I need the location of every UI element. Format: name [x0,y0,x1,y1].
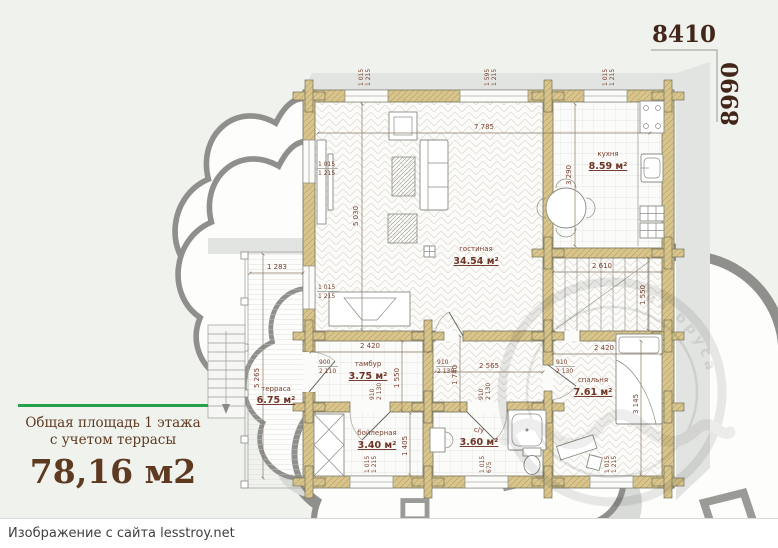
room-name-bedroom: спальня [578,376,608,384]
room-area-terrace: 6.75 м² [257,395,296,406]
room-name-kitchen: кухня [597,150,618,158]
room-area-bath: 3.60 м² [460,437,499,448]
room-name-bath: с/у [474,426,484,434]
exterior-stairs [208,325,245,418]
room-area-living: 34.54 м² [453,256,498,267]
door-label: 900 [319,359,331,366]
dim-terrace-width: 1 283 [267,263,287,271]
window-label: 1 015 [604,456,611,473]
window [303,140,315,183]
sink [641,154,663,182]
dim-vestibule-height: 1 550 [393,368,401,388]
tv-table [389,112,417,140]
window-label: 1 015 [479,456,486,473]
dim-terrace-height: 5 265 [253,368,261,388]
room-name-terrace: терраса [261,385,291,393]
overall-width-label: 8410 [652,21,716,48]
window-label: 1 595 [484,69,491,86]
room-area-vestibule: 3.75 м² [349,371,388,382]
column-marker [424,246,435,257]
door-label: 2 130 [556,368,573,375]
dim-kitchen-height: 3 290 [565,165,573,185]
floor-plan-page: 7 785 5 030 3 290 2 610 1 550 2 420 3 14… [0,0,778,548]
sideboard [317,140,326,224]
door-label: 2 130 [485,383,492,400]
total-area-value: 78,16 м2 [14,452,212,491]
stove [640,101,664,133]
door-label: 910 [369,388,376,400]
window-label: 1 015 [602,69,609,86]
fireplace [329,292,410,326]
sofa [420,140,448,210]
door-label: 910 [556,359,568,366]
window [345,90,388,102]
dim-boiler-height: 1 405 [401,436,409,456]
summary-line1: Общая площадь 1 этажа [14,415,212,432]
coffee-table [392,157,415,196]
door-label: 2 110 [319,368,336,375]
room-name-boiler: бойлерная [357,429,396,437]
dim-living-height: 5 030 [352,206,360,226]
window-label: 1 015 [318,161,335,168]
room-area-kitchen: 8.59 м² [589,161,628,172]
door-label: 910 [437,359,449,366]
chair [586,455,602,471]
window-label: 675 [486,461,493,473]
attribution-text: Изображение с сайта lesstroy.net [0,519,778,548]
door-label: 2 130 [437,368,454,375]
door-label: 2 130 [376,383,383,400]
window-label: 1 215 [318,170,335,177]
dim-living-width: 7 785 [474,123,494,131]
dim-bedroom-width: 2 420 [594,344,614,352]
window-label: 1 015 [318,284,335,291]
door-label: 910 [478,388,485,400]
window-label: 1 215 [371,456,378,473]
dim-hall-width: 2 565 [479,362,499,370]
green-rule [18,404,208,407]
area-summary: Общая площадь 1 этажа с учетом террасы 7… [14,404,212,491]
window [584,90,627,102]
window-label: 1 215 [491,69,498,86]
window [465,476,508,488]
overall-height-label: 8990 [717,62,744,126]
window-label: 1 215 [609,69,616,86]
window [303,266,315,309]
dim-stairs-width: 2 610 [592,262,612,270]
room-area-bedroom: 7.61 м² [574,387,613,398]
room-area-boiler: 3.40 м² [358,440,397,451]
summary-line2: с учетом террасы [14,432,212,449]
window [350,476,393,488]
attribution-bar: Изображение с сайта lesstroy.net [0,518,778,548]
boiler-unit [314,414,344,476]
window-label: 1 215 [318,293,335,300]
window-label: 1 215 [611,456,618,473]
window [460,90,528,102]
dim-vestibule-width: 2 420 [360,342,380,350]
armchair [388,214,417,243]
room-name-vestibule: тамбур [355,360,382,368]
window-label: 1 015 [358,69,365,86]
dim-bedroom-height: 3 145 [632,394,640,414]
window-label: 1 215 [365,69,372,86]
room-name-living: гостиная [459,245,493,253]
window-label: 1 015 [364,456,371,473]
